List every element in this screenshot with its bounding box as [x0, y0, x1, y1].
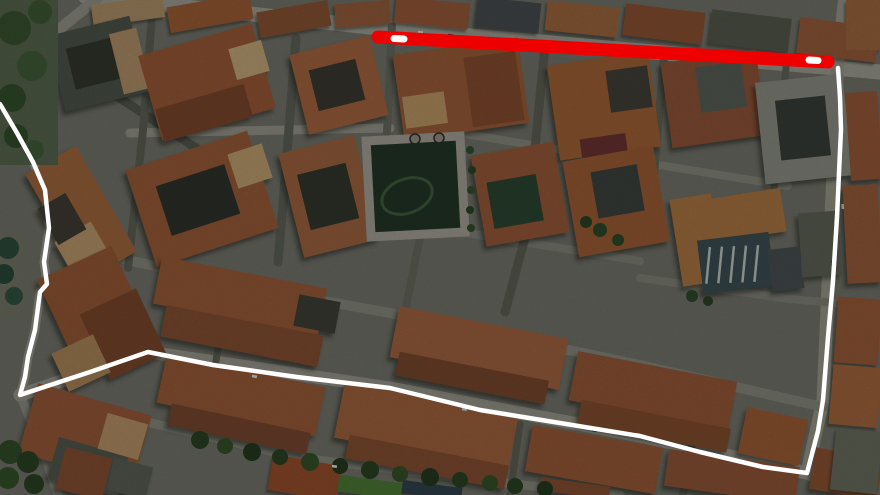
- satellite-photo: [0, 0, 880, 495]
- highlight-gap-marker-left: [394, 39, 404, 40]
- highlight-gap-marker-right: [809, 60, 818, 61]
- photo-grain: [0, 0, 880, 495]
- aerial-map-image: [0, 0, 880, 495]
